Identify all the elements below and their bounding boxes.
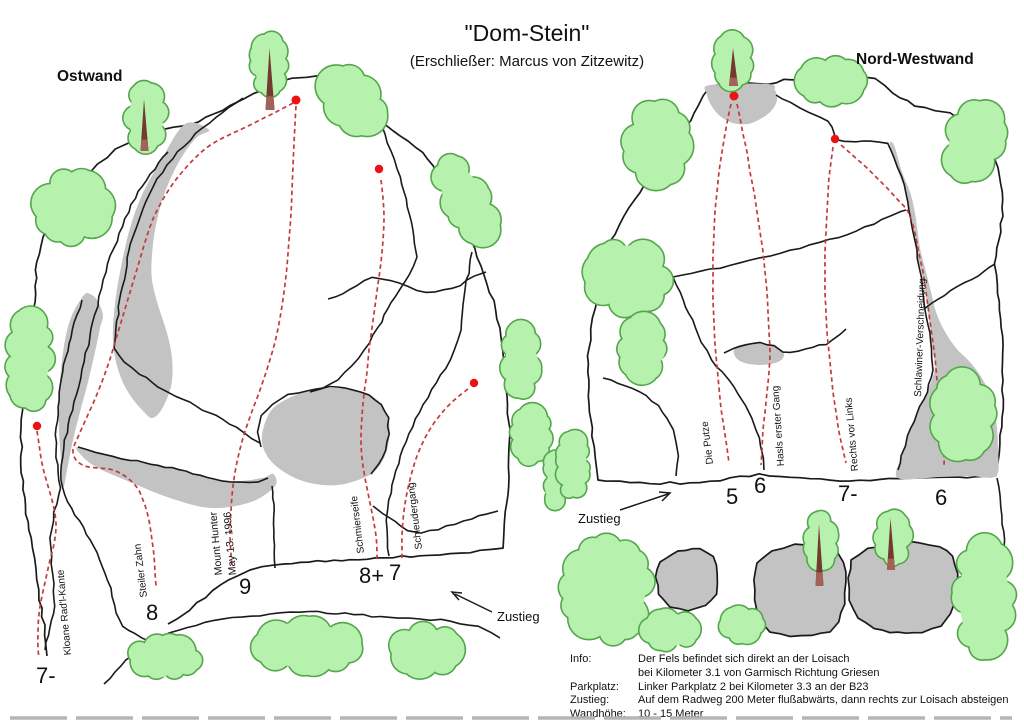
svg-text:bei Kilometer 3.1 von Garmisch: bei Kilometer 3.1 von Garmisch Richtung … [638,667,880,679]
svg-text:7: 7 [389,560,401,585]
svg-text:8+: 8+ [359,563,384,588]
svg-text:(Erschließer: Marcus von Zitze: (Erschließer: Marcus von Zitzewitz) [410,53,644,70]
svg-text:7-: 7- [838,481,858,506]
svg-text:Nord-Westwand: Nord-Westwand [856,51,974,68]
svg-text:Parkplatz:: Parkplatz: [570,681,619,693]
svg-text:6: 6 [754,473,766,498]
svg-text:Der Fels befindet sich direkt: Der Fels befindet sich direkt an der Loi… [638,653,850,665]
svg-text:Zustieg: Zustieg [578,511,621,526]
svg-text:7-: 7- [36,663,56,688]
svg-text:"Dom-Stein": "Dom-Stein" [465,20,590,46]
svg-text:Zustieg: Zustieg [497,609,540,624]
svg-text:8: 8 [146,600,158,625]
svg-text:6: 6 [935,485,947,510]
svg-text:Auf dem Radweg 200 Meter flußa: Auf dem Radweg 200 Meter flußabwärts, da… [638,694,1009,706]
svg-text:9: 9 [239,574,251,599]
svg-text:5: 5 [726,484,738,509]
svg-text:Info:: Info: [570,653,591,665]
svg-text:Ostwand: Ostwand [57,68,122,85]
svg-text:Zustieg:: Zustieg: [570,694,609,706]
svg-text:Linker Parkplatz 2 bei Kilomet: Linker Parkplatz 2 bei Kilometer 3.3 an … [638,681,869,693]
